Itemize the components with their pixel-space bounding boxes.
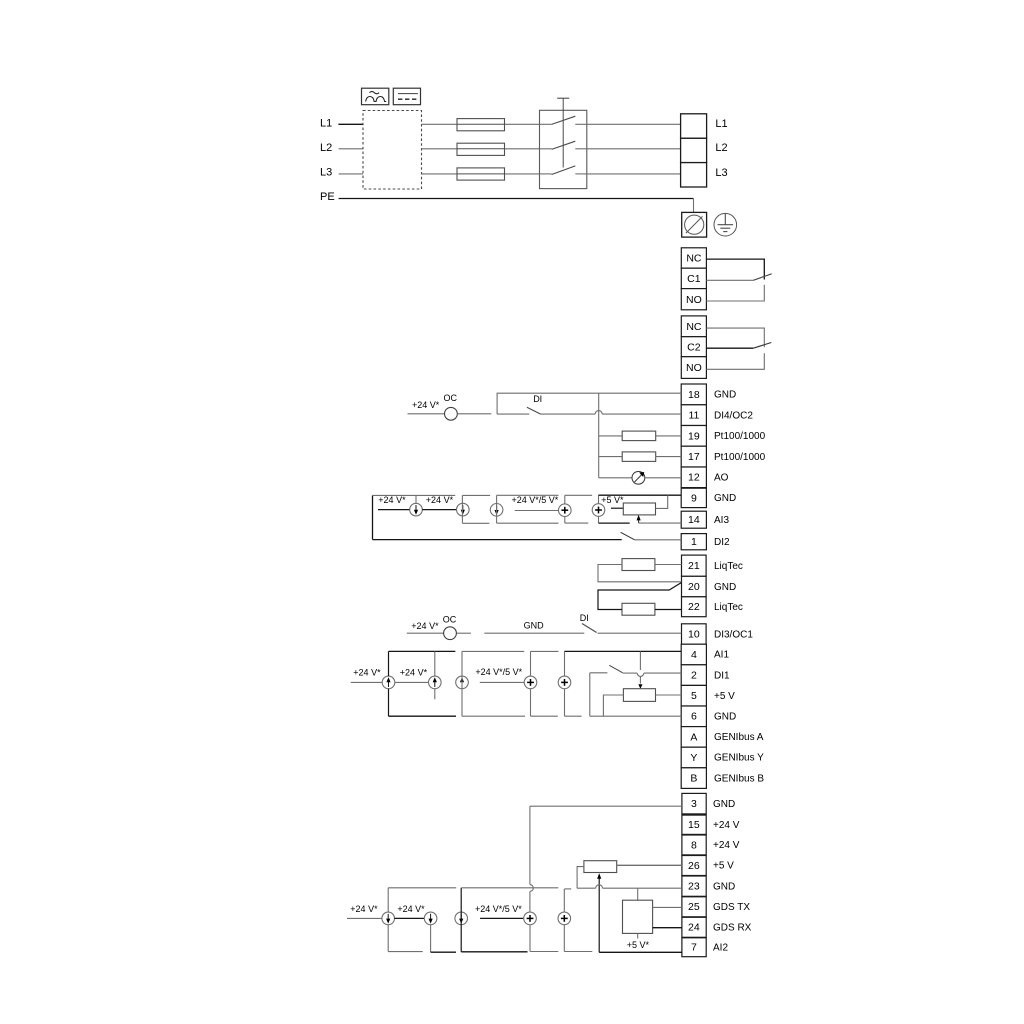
svg-text:AI2: AI2	[713, 942, 728, 953]
svg-text:+5 V*: +5 V*	[601, 495, 624, 505]
svg-text:NC: NC	[686, 253, 702, 265]
svg-text:11: 11	[688, 410, 699, 422]
svg-text:+24 V*: +24 V*	[353, 668, 381, 678]
svg-text:OC: OC	[443, 614, 457, 624]
svg-text:GND: GND	[714, 493, 736, 504]
svg-text:GENIbus Y: GENIbus Y	[714, 753, 764, 764]
svg-text:8: 8	[691, 839, 697, 851]
svg-text:24: 24	[688, 922, 700, 934]
svg-text:12: 12	[688, 472, 700, 484]
svg-text:A: A	[690, 731, 697, 743]
svg-text:+24 V*: +24 V*	[378, 495, 406, 505]
svg-text:25: 25	[688, 901, 700, 913]
svg-text:+24 V: +24 V	[713, 820, 740, 831]
svg-text:+24 V*: +24 V*	[426, 495, 454, 505]
svg-text:B: B	[690, 773, 697, 785]
svg-text:GND: GND	[713, 799, 735, 810]
svg-text:+24 V*/5 V*: +24 V*/5 V*	[512, 495, 559, 505]
svg-text:4: 4	[691, 649, 697, 661]
svg-text:15: 15	[688, 819, 700, 831]
svg-text:23: 23	[688, 881, 700, 893]
svg-text:19: 19	[688, 430, 700, 442]
svg-text:GDS RX: GDS RX	[713, 923, 752, 934]
svg-text:C2: C2	[687, 341, 701, 353]
svg-text:7: 7	[691, 942, 697, 954]
svg-text:GND: GND	[714, 390, 736, 401]
svg-text:+24 V*: +24 V*	[400, 668, 428, 678]
svg-text:DI1: DI1	[714, 670, 730, 681]
svg-text:L3: L3	[320, 167, 332, 179]
svg-text:L1: L1	[320, 118, 332, 130]
svg-text:DI3/OC1: DI3/OC1	[714, 629, 753, 640]
svg-text:+24 V*: +24 V*	[350, 904, 378, 914]
svg-text:+5 V*: +5 V*	[627, 940, 650, 950]
svg-text:L1: L1	[715, 118, 727, 130]
svg-text:+24 V: +24 V	[713, 840, 740, 851]
svg-text:+24 V*: +24 V*	[412, 400, 440, 410]
svg-text:6: 6	[691, 711, 697, 723]
svg-text:GND: GND	[713, 881, 735, 892]
svg-text:L3: L3	[715, 167, 727, 179]
svg-text:AI3: AI3	[714, 515, 729, 526]
svg-text:DI4/OC2: DI4/OC2	[714, 410, 753, 421]
svg-text:AI1: AI1	[714, 650, 729, 661]
svg-text:14: 14	[688, 514, 700, 526]
svg-text:10: 10	[688, 629, 700, 641]
svg-text:1: 1	[691, 536, 697, 548]
svg-text:GND: GND	[714, 712, 736, 723]
svg-text:26: 26	[688, 860, 700, 872]
svg-text:DI2: DI2	[714, 537, 730, 548]
svg-text:21: 21	[688, 560, 700, 572]
svg-text:GENIbus B: GENIbus B	[714, 773, 764, 784]
svg-text:Pt100/1000: Pt100/1000	[714, 452, 766, 463]
svg-text:NC: NC	[686, 321, 702, 333]
svg-text:+5 V: +5 V	[713, 861, 734, 872]
svg-text:L2: L2	[715, 142, 727, 154]
svg-text:+5 V: +5 V	[714, 691, 735, 702]
svg-text:Y: Y	[690, 752, 697, 764]
svg-text:C1: C1	[687, 273, 701, 285]
svg-text:18: 18	[688, 389, 700, 401]
svg-text:Pt100/1000: Pt100/1000	[714, 431, 766, 442]
svg-text:DI: DI	[533, 394, 542, 404]
svg-text:LiqTec: LiqTec	[714, 561, 743, 572]
svg-text:22: 22	[688, 601, 700, 613]
svg-text:GND: GND	[714, 582, 736, 593]
svg-text:LiqTec: LiqTec	[714, 602, 743, 613]
svg-text:+24 V*/5 V*: +24 V*/5 V*	[475, 667, 522, 677]
svg-text:GND: GND	[524, 620, 545, 630]
svg-text:+24 V*/5 V*: +24 V*/5 V*	[475, 904, 522, 914]
svg-text:DI: DI	[580, 613, 589, 623]
svg-text:L2: L2	[320, 142, 332, 154]
svg-text:+24 V*: +24 V*	[397, 904, 425, 914]
svg-text:9: 9	[691, 492, 697, 504]
svg-text:5: 5	[691, 690, 697, 702]
svg-text:17: 17	[688, 451, 700, 463]
svg-text:OC: OC	[444, 393, 458, 403]
svg-text:AO: AO	[714, 473, 729, 484]
svg-text:2: 2	[691, 670, 697, 682]
svg-text:NO: NO	[686, 294, 702, 306]
svg-text:20: 20	[688, 581, 700, 593]
svg-text:NO: NO	[686, 362, 702, 374]
svg-text:PE: PE	[320, 191, 335, 203]
svg-text:3: 3	[691, 798, 697, 810]
svg-text:GENIbus A: GENIbus A	[714, 732, 764, 743]
svg-text:GDS TX: GDS TX	[713, 902, 750, 913]
svg-text:+24 V*: +24 V*	[411, 621, 439, 631]
